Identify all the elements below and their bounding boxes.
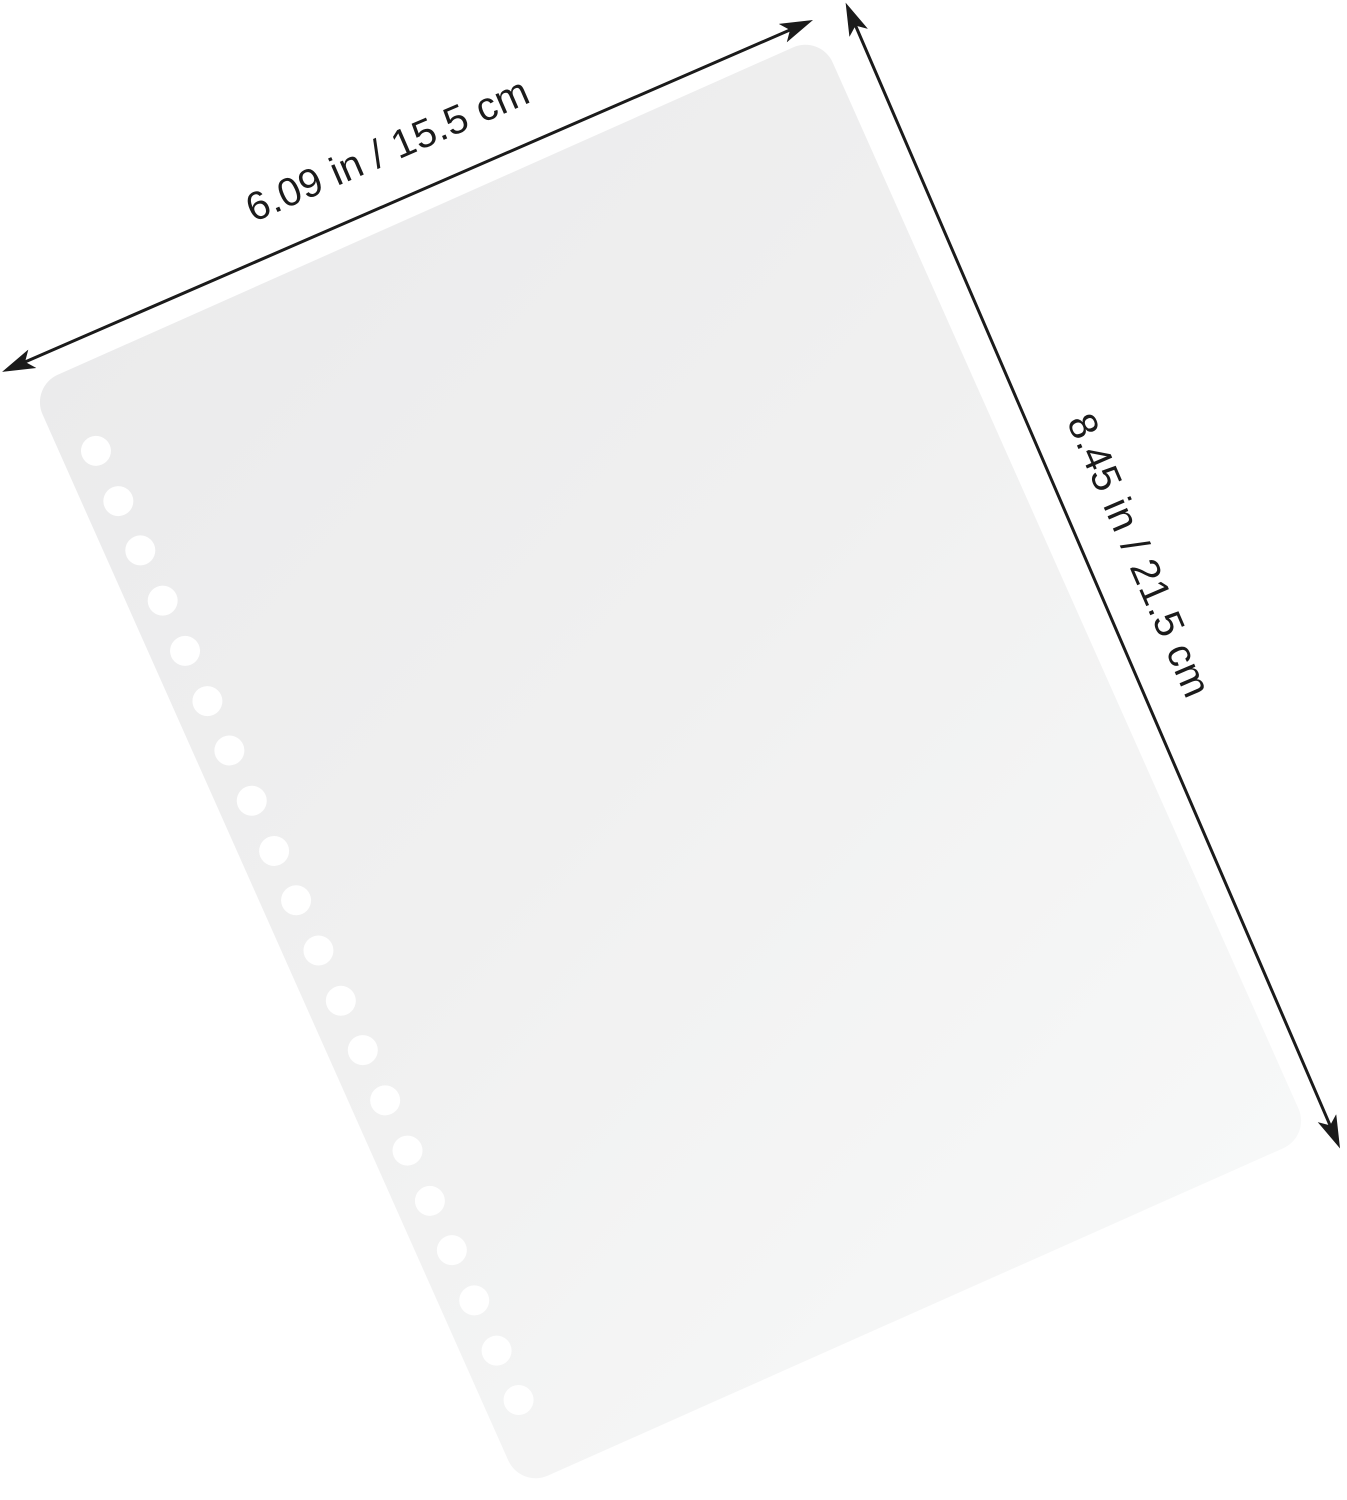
arrow-up-icon (836, 0, 868, 37)
punch-hole (432, 1231, 472, 1271)
punch-hole (477, 1330, 517, 1370)
punch-hole-column (30, 35, 820, 387)
punch-hole (499, 1380, 539, 1420)
product-dimension-image: 6.09 in / 15.5 cm 8.45 in / 21.5 cm (0, 0, 1347, 1500)
arrow-left-icon (0, 349, 37, 381)
punch-hole (121, 531, 161, 571)
punch-hole (276, 881, 316, 921)
arrow-down-icon (1317, 1114, 1347, 1153)
punch-hole (210, 731, 250, 771)
punch-hole (187, 681, 227, 721)
arrow-right-icon (779, 10, 818, 42)
punch-hole (254, 831, 294, 871)
punch-hole (76, 431, 116, 471)
punch-hole (98, 481, 138, 521)
punch-hole (454, 1281, 494, 1321)
punch-hole (365, 1081, 405, 1121)
loose-leaf-paper-sheet (30, 35, 1310, 1488)
punch-hole (232, 781, 272, 821)
punch-hole (321, 981, 361, 1021)
punch-hole (299, 931, 339, 971)
punch-hole (165, 631, 205, 671)
punch-hole (388, 1131, 428, 1171)
punch-hole (143, 581, 183, 621)
punch-hole (343, 1031, 383, 1071)
punch-hole (410, 1181, 450, 1221)
